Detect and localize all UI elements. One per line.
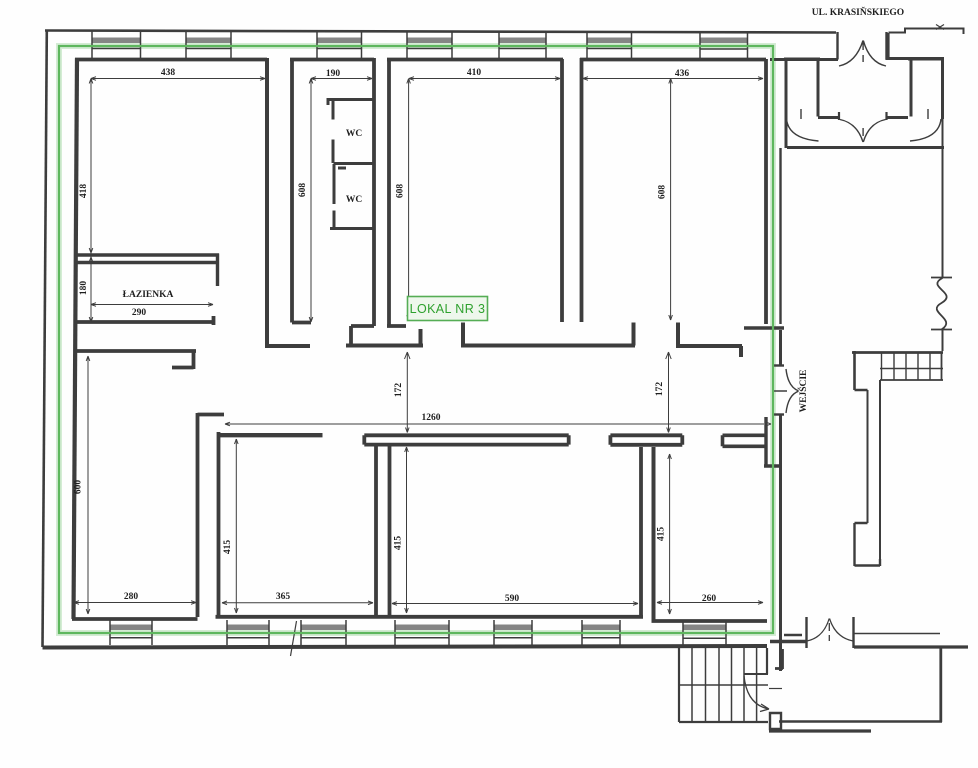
- svg-text:415: 415: [223, 540, 233, 555]
- svg-text:172: 172: [394, 383, 404, 398]
- svg-text:172: 172: [655, 382, 665, 397]
- svg-text:415: 415: [657, 527, 667, 542]
- svg-text:WC: WC: [346, 129, 363, 139]
- svg-text:438: 438: [161, 68, 176, 78]
- svg-text:600: 600: [74, 480, 84, 495]
- svg-text:590: 590: [505, 594, 520, 604]
- svg-text:608: 608: [298, 183, 308, 198]
- svg-text:ŁAZIENKA: ŁAZIENKA: [123, 290, 174, 300]
- svg-text:280: 280: [124, 592, 139, 602]
- svg-text:WEJŚCIE: WEJŚCIE: [797, 370, 809, 413]
- svg-text:415: 415: [394, 536, 404, 551]
- svg-text:608: 608: [396, 184, 406, 199]
- svg-text:290: 290: [132, 308, 147, 318]
- svg-text:1260: 1260: [422, 413, 441, 423]
- svg-text:180: 180: [79, 281, 89, 296]
- svg-text:436: 436: [675, 69, 690, 79]
- svg-text:608: 608: [658, 185, 668, 200]
- svg-text:260: 260: [702, 594, 717, 604]
- svg-text:418: 418: [79, 184, 89, 199]
- svg-text:LOKAL NR 3: LOKAL NR 3: [410, 302, 486, 316]
- svg-text:UL. KRASIŇSKIEGO: UL. KRASIŇSKIEGO: [812, 6, 904, 18]
- svg-text:365: 365: [276, 592, 291, 602]
- svg-text:WC: WC: [346, 195, 363, 205]
- svg-text:410: 410: [467, 68, 482, 78]
- svg-text:190: 190: [326, 69, 341, 79]
